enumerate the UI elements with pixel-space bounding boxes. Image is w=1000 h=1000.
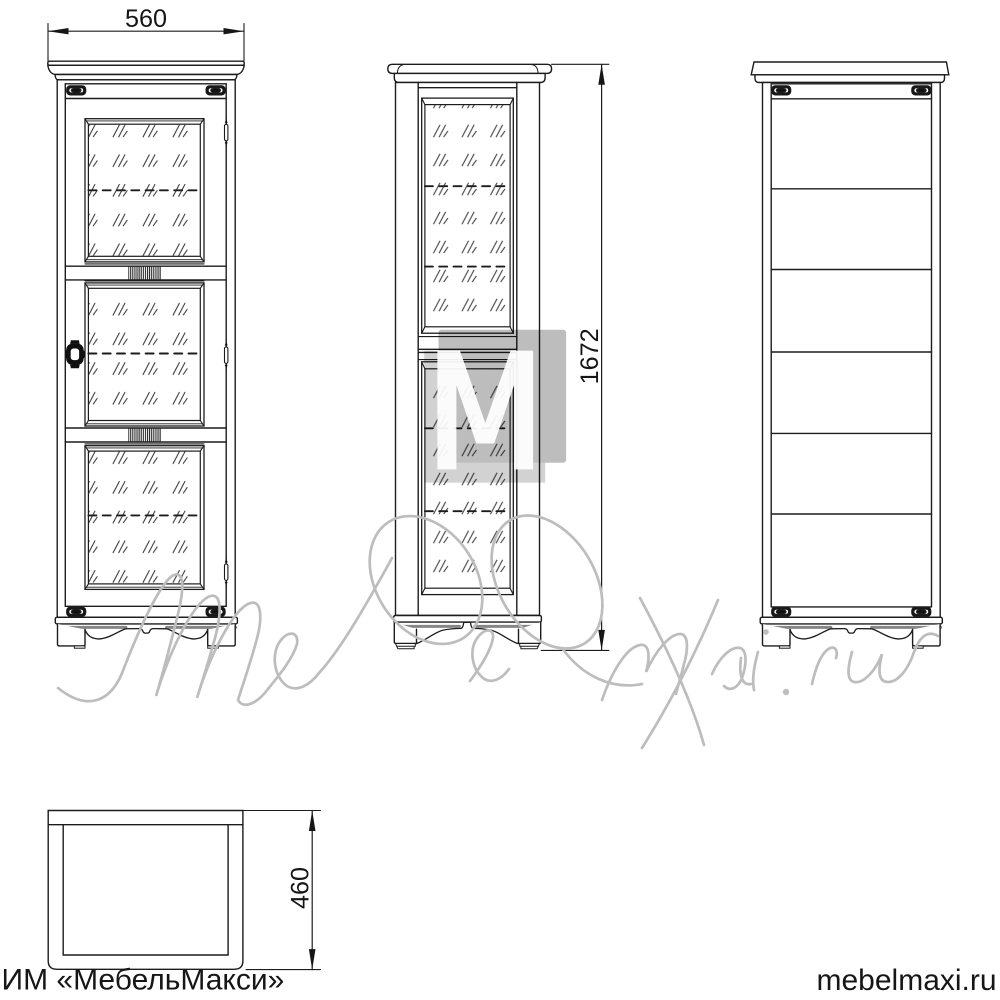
- svg-text:1672: 1672: [576, 328, 604, 384]
- svg-text:560: 560: [125, 5, 167, 33]
- svg-text:mebelmaxi.ru: mebelmaxi.ru: [817, 964, 997, 997]
- svg-text:460: 460: [287, 867, 315, 909]
- svg-text:ИМ «МебельМакси»: ИМ «МебельМакси»: [2, 964, 285, 997]
